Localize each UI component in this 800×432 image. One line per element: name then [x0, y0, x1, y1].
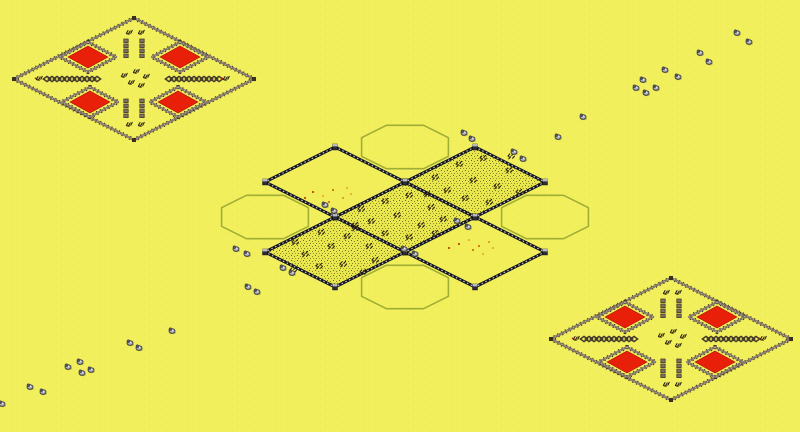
game-viewport	[0, 0, 800, 432]
game-map	[0, 0, 800, 432]
